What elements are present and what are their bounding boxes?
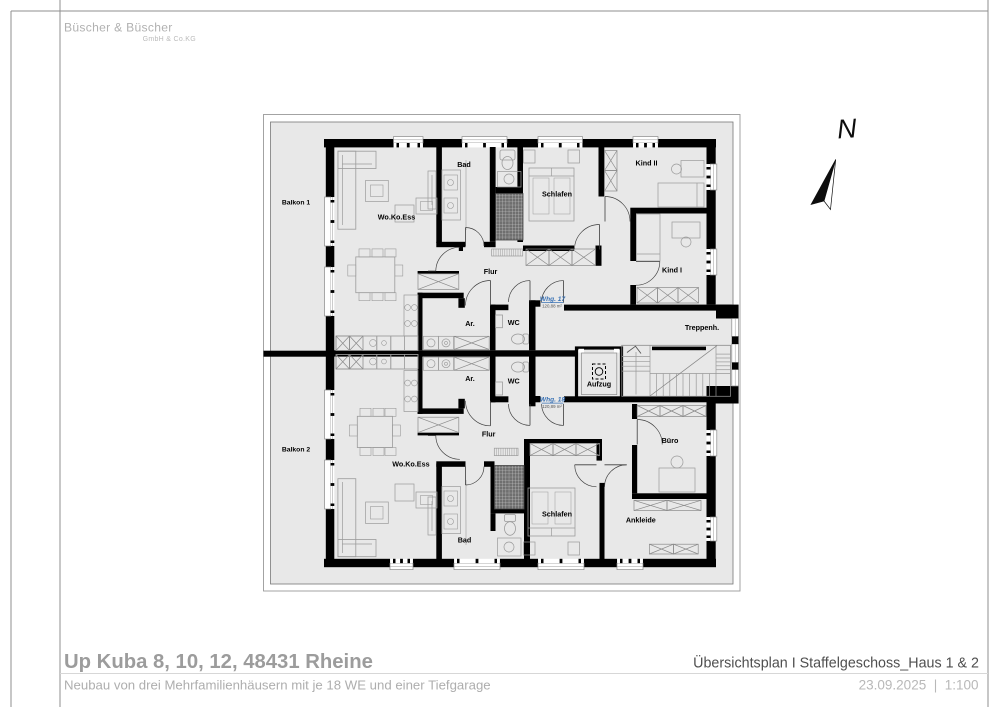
svg-text:WC: WC (508, 377, 520, 386)
svg-text:Whg. 18: Whg. 18 (540, 397, 566, 404)
svg-text:Treppenh.: Treppenh. (685, 323, 719, 332)
svg-text:Ar.: Ar. (465, 374, 475, 383)
svg-text:120,88 m²: 120,88 m² (542, 303, 562, 308)
svg-text:Ar.: Ar. (465, 319, 475, 328)
svg-text:Up Kuba 8, 10, 12, 48431 Rhein: Up Kuba 8, 10, 12, 48431 Rheine (64, 651, 373, 673)
svg-text:Balkon 1: Balkon 1 (282, 200, 311, 207)
svg-text:GmbH & Co.KG: GmbH & Co.KG (143, 36, 196, 43)
svg-text:Wo.Ko.Ess: Wo.Ko.Ess (392, 460, 429, 469)
svg-text:Kind II: Kind II (636, 159, 658, 168)
svg-text:Bad: Bad (457, 160, 471, 169)
svg-text:Ankleide: Ankleide (626, 516, 656, 525)
svg-text:Schlafen: Schlafen (542, 190, 572, 199)
svg-text:Wo.Ko.Ess: Wo.Ko.Ess (378, 213, 415, 222)
svg-text:Büscher & Büscher: Büscher & Büscher (64, 21, 173, 35)
svg-text:Büro: Büro (662, 436, 679, 445)
svg-text:23.09.2025 | 1:100: 23.09.2025 | 1:100 (859, 678, 979, 693)
svg-text:WC: WC (508, 318, 520, 327)
svg-text:Flur: Flur (482, 430, 496, 439)
svg-text:Übersichtsplan I Staffelgescho: Übersichtsplan I Staffelgeschoss_Haus 1 … (693, 654, 979, 672)
svg-text:Neubau von drei Mehrfamilienhä: Neubau von drei Mehrfamilienhäusern mit … (64, 678, 491, 693)
svg-text:Aufzug: Aufzug (587, 380, 611, 389)
svg-text:Kind I: Kind I (662, 266, 682, 275)
svg-text:120,89 m²: 120,89 m² (542, 404, 562, 409)
svg-text:Balkon 2: Balkon 2 (282, 447, 311, 454)
svg-text:Flur: Flur (484, 267, 498, 276)
svg-text:Whg. 17: Whg. 17 (540, 296, 566, 303)
svg-text:N: N (836, 113, 858, 144)
svg-text:Schlafen: Schlafen (542, 509, 572, 518)
svg-text:Bad: Bad (458, 535, 472, 544)
